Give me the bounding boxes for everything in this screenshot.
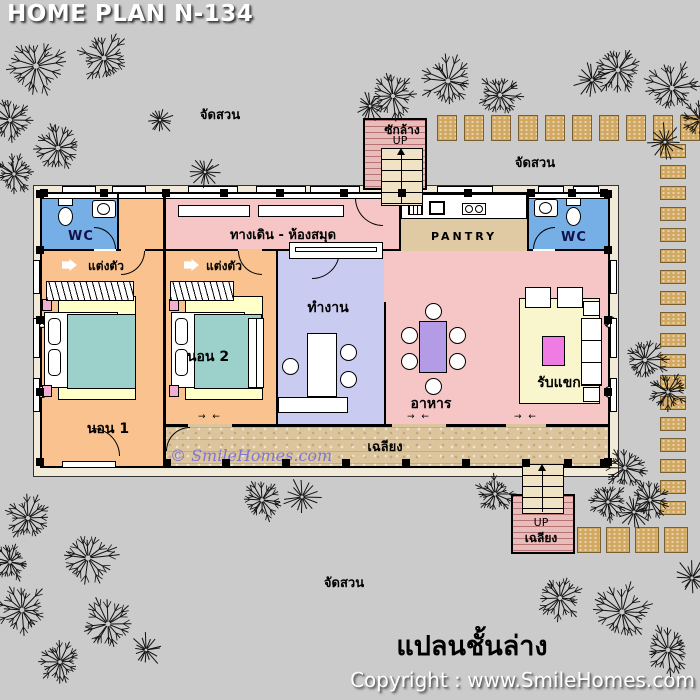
window-marker <box>112 186 146 193</box>
stepping-stone <box>660 291 686 305</box>
tree-icon <box>125 629 167 671</box>
tree-icon <box>569 57 615 103</box>
label-entry-porch: เฉลียง <box>525 529 558 548</box>
stepping-stone <box>660 375 686 389</box>
window-marker <box>538 186 564 193</box>
bed1-pillow <box>48 349 61 376</box>
door-gap-wc-left <box>94 249 116 251</box>
wall-post <box>282 459 290 467</box>
toilet-bowl-icon <box>566 207 581 226</box>
bed1-wardrobe <box>46 281 134 301</box>
end-table <box>583 387 600 402</box>
wall-post <box>36 246 44 254</box>
stepping-stone <box>660 312 686 326</box>
stepping-stone <box>660 165 686 179</box>
copyright-text: Copyright : www.SmileHomes.com <box>350 668 695 692</box>
wall-post <box>342 459 350 467</box>
wall-post <box>564 459 572 467</box>
stepping-stone <box>577 527 601 553</box>
stepping-stone <box>660 480 686 494</box>
coffee-table <box>542 336 565 366</box>
label-dressing-2: แต่งตัว <box>206 257 242 276</box>
tree-icon <box>75 591 141 657</box>
stepping-stone <box>660 354 686 368</box>
stepping-stone <box>660 207 686 221</box>
armchair <box>525 287 551 308</box>
floor-plan-canvas: → ← → ← → ← ทางเดิน - ห้องสมุด PANTRY WC… <box>0 0 700 700</box>
label-wc-left: WC <box>68 229 94 244</box>
wall-post <box>402 459 410 467</box>
dining-chair <box>449 327 466 344</box>
office-chair <box>340 371 357 388</box>
stepping-stone <box>599 115 619 141</box>
wall-post <box>398 189 406 197</box>
dining-chair <box>401 327 418 344</box>
tree-icon <box>669 555 700 601</box>
wall-post <box>100 189 108 197</box>
stepping-stone <box>635 527 659 553</box>
wall-post <box>36 316 44 324</box>
stepping-stone <box>437 115 457 141</box>
wall-post <box>604 246 612 254</box>
bed1-pillow <box>48 318 61 345</box>
stair-arrow-head <box>538 464 546 471</box>
stepping-stone <box>464 115 484 141</box>
stepping-stone <box>572 115 592 141</box>
window-marker <box>33 260 40 294</box>
wall-post <box>163 459 171 467</box>
tree-icon <box>531 569 589 627</box>
wall-post <box>162 189 170 197</box>
tree-icon <box>53 523 123 593</box>
window-marker <box>62 461 116 468</box>
label-bedroom2: นอน 2 <box>187 346 229 368</box>
bookshelf <box>258 205 344 217</box>
stepping-stone <box>660 396 686 410</box>
bed1-blanket <box>67 314 136 389</box>
label-dressing-1: แต่งตัว <box>88 257 124 276</box>
garden-label-top-right: จัดสวน <box>515 152 555 173</box>
toilet-tank-icon <box>566 198 581 206</box>
wall-post <box>36 190 44 198</box>
stairs-top <box>381 148 423 206</box>
wall-wc-left-right <box>117 194 119 251</box>
sofa <box>581 318 602 386</box>
dining-chair <box>425 303 442 320</box>
toilet-bowl-icon <box>58 207 73 226</box>
tree-icon <box>27 117 89 179</box>
door-gap-dining-porch <box>392 424 446 427</box>
garden-label-top-left: จัดสวน <box>200 104 240 125</box>
door-gap-wc-right <box>533 249 555 251</box>
stepping-stone <box>660 459 686 473</box>
bed2-pillow <box>175 318 188 345</box>
wall-post <box>568 189 576 197</box>
label-entry-up: UP <box>534 516 549 529</box>
office-desk <box>307 333 337 397</box>
tree-icon <box>364 67 422 125</box>
window-marker <box>573 186 599 193</box>
office-chair <box>340 344 357 361</box>
tree-icon <box>235 473 289 527</box>
label-bedroom1: นอน 1 <box>87 418 129 440</box>
stepping-stone <box>660 501 686 515</box>
window-marker <box>610 260 617 294</box>
stepping-stone <box>660 438 686 452</box>
wall-post <box>604 190 612 198</box>
tree-icon <box>141 101 179 139</box>
burner-icon <box>475 205 483 213</box>
tree-icon <box>583 477 633 527</box>
sink-bowl-icon <box>97 203 110 215</box>
garden-label-bottom: จัดสวน <box>324 572 364 593</box>
window-marker <box>310 186 360 193</box>
office-cabinet-shelf <box>295 247 377 252</box>
stepping-stone <box>660 186 686 200</box>
stair-arrow-line <box>542 468 543 512</box>
wall-post <box>462 459 470 467</box>
window-marker <box>188 186 238 193</box>
stepping-stone <box>664 527 688 553</box>
sink-bowl-icon <box>539 202 552 214</box>
stepping-stone <box>660 144 686 158</box>
toilet-tank-icon <box>58 198 73 206</box>
stepping-stone <box>545 115 565 141</box>
wall-post <box>464 189 472 197</box>
bookshelf <box>178 205 250 217</box>
floor-plan-caption: แปลนชั้นล่าง <box>396 624 547 667</box>
tree-icon <box>279 474 325 520</box>
label-porch: เฉลียง <box>367 436 402 457</box>
armchair <box>557 287 583 308</box>
wall-post <box>604 458 612 466</box>
door-swing-mark: → ← <box>198 412 222 422</box>
stepping-stone <box>606 527 630 553</box>
door-swing-mark: → ← <box>514 412 538 422</box>
tree-icon <box>0 537 35 587</box>
tree-icon <box>71 25 137 91</box>
door-gap-living-porch <box>506 424 546 427</box>
window-marker <box>610 318 617 358</box>
wall-post <box>36 388 44 396</box>
office-desk-return <box>278 397 348 413</box>
tree-icon <box>0 577 55 643</box>
dining-chair <box>449 353 466 370</box>
tree-icon <box>587 39 649 101</box>
wall-post <box>604 388 612 396</box>
bed2-closet <box>248 318 264 388</box>
stepping-stone <box>653 115 673 141</box>
tree-icon <box>33 635 87 689</box>
tree-icon <box>0 29 73 103</box>
label-hall-library: ทางเดิน - ห้องสมุด <box>230 224 336 245</box>
tree-icon <box>415 48 481 114</box>
wall-pantry-wc <box>527 194 529 251</box>
label-dining: อาหาร <box>411 393 452 415</box>
wall-post <box>220 189 228 197</box>
stepping-stone <box>660 270 686 284</box>
stepping-stone <box>660 333 686 347</box>
wall-post <box>36 458 44 466</box>
room-vestibule <box>119 199 163 251</box>
wall-post <box>522 459 530 467</box>
stepping-stone <box>660 249 686 263</box>
watermark: © SmileHomes.com <box>170 446 332 465</box>
stairs-bottom <box>522 464 564 514</box>
end-table <box>583 301 600 316</box>
wall-post <box>527 189 535 197</box>
door-gap-bed2-porch <box>188 424 232 427</box>
office-chair <box>282 358 299 375</box>
label-pantry: PANTRY <box>431 230 497 243</box>
window-marker <box>62 186 96 193</box>
wall-post <box>222 459 230 467</box>
kitchen-sink-icon <box>429 201 445 215</box>
tree-icon <box>0 91 39 149</box>
dining-chair <box>401 353 418 370</box>
label-living: รับแขก <box>537 372 580 394</box>
page-title: HOME PLAN N-134 <box>7 1 253 27</box>
stepping-stone <box>680 115 700 141</box>
wall-post <box>340 189 348 197</box>
stair-arrow-head <box>397 148 405 155</box>
tree-icon <box>639 55 700 121</box>
wall-office-dining <box>384 302 386 426</box>
stepping-stone <box>660 228 686 242</box>
stepping-stone <box>626 115 646 141</box>
dining-table <box>419 321 447 373</box>
label-office: ทำงาน <box>307 297 348 319</box>
burner-icon <box>465 205 473 213</box>
label-wc-right: WC <box>561 230 587 245</box>
bed2-wardrobe <box>170 281 234 301</box>
label-laundry-up: UP <box>393 134 408 147</box>
stepping-stone <box>491 115 511 141</box>
wall-post <box>276 189 284 197</box>
window-marker <box>33 318 40 358</box>
tree-icon <box>0 489 57 547</box>
stepping-stone <box>518 115 538 141</box>
stepping-stone <box>660 417 686 431</box>
wall-post <box>604 316 612 324</box>
tree-icon <box>587 577 657 647</box>
bed2-nightstand <box>169 385 179 397</box>
